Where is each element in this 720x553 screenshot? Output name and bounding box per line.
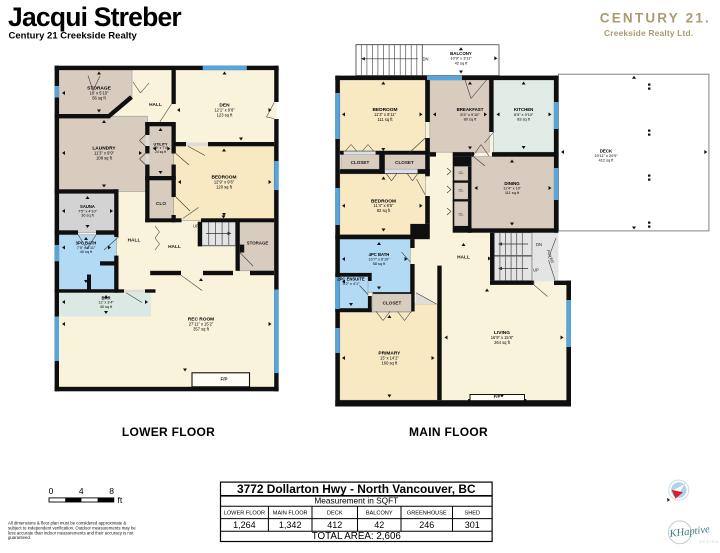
svg-text:264 sq ft: 264 sq ft [494, 340, 511, 345]
svg-text:CENTURY 21.: CENTURY 21. [600, 11, 711, 26]
svg-text:HALL: HALL [149, 102, 162, 108]
svg-text:MAIN FLOOR: MAIN FLOOR [273, 511, 308, 517]
svg-text:F/P: F/P [494, 394, 501, 399]
svg-text:CL: CL [458, 170, 464, 175]
svg-text:120 sq ft: 120 sq ft [216, 184, 233, 189]
svg-text:108 sq ft: 108 sq ft [96, 155, 113, 160]
svg-text:83 sq ft: 83 sq ft [517, 117, 531, 122]
svg-text:357 sq ft: 357 sq ft [193, 326, 210, 331]
svg-text:TOTAL AREA: 2,606: TOTAL AREA: 2,606 [312, 531, 402, 542]
svg-text:CL: CL [458, 211, 464, 216]
svg-text:40 sq ft: 40 sq ft [80, 250, 93, 254]
svg-text:412 sq ft: 412 sq ft [599, 158, 615, 163]
svg-text:111 sq ft: 111 sq ft [377, 117, 393, 122]
svg-text:F/P: F/P [220, 377, 227, 382]
svg-text:80 sq ft: 80 sq ft [464, 117, 478, 122]
svg-text:ft: ft [118, 495, 123, 505]
svg-text:36 sq ft: 36 sq ft [81, 214, 94, 218]
svg-text:LOWER FLOOR: LOWER FLOOR [224, 511, 265, 517]
svg-text:58 sq ft: 58 sq ft [373, 262, 386, 266]
svg-text:Measurement in SQFT: Measurement in SQFT [314, 496, 398, 506]
svg-text:246: 246 [419, 520, 434, 530]
svg-text:56 sq ft: 56 sq ft [92, 95, 106, 100]
svg-text:CL: CL [458, 187, 464, 192]
svg-text:DN: DN [536, 242, 542, 247]
svg-text:Creekside Realty Ltd.: Creekside Realty Ltd. [604, 28, 693, 38]
svg-text:guaranteed.: guaranteed. [8, 535, 31, 540]
svg-text:1,264: 1,264 [233, 520, 256, 530]
svg-text:1,342: 1,342 [279, 520, 302, 530]
svg-text:82 sq ft: 82 sq ft [377, 208, 391, 213]
svg-text:7’5” x 4’10”: 7’5” x 4’10” [78, 209, 98, 213]
svg-text:42: 42 [374, 520, 384, 530]
svg-text:SHED: SHED [465, 511, 481, 517]
svg-text:160 sq ft: 160 sq ft [382, 360, 399, 365]
svg-text:CLOSET: CLOSET [383, 301, 402, 306]
svg-text:5’2” x 4’1”: 5’2” x 4’1” [343, 282, 360, 286]
svg-text:8: 8 [109, 486, 114, 496]
svg-text:3772 Dollarton Hwy - North Van: 3772 Dollarton Hwy - North Vancouver, BC [237, 482, 476, 496]
svg-text:UP: UP [193, 224, 199, 229]
svg-text:HALL: HALL [168, 244, 181, 250]
svg-text:24 sq ft: 24 sq ft [155, 150, 166, 154]
svg-text:LOWER FLOOR: LOWER FLOOR [122, 425, 215, 439]
svg-text:CLOSET: CLOSET [351, 160, 370, 165]
svg-text:DN: DN [423, 57, 429, 62]
svg-text:Century 21 Creekside Realty: Century 21 Creekside Realty [9, 31, 138, 42]
svg-text:STORAGE: STORAGE [247, 241, 269, 246]
svg-text:123 sq ft: 123 sq ft [217, 112, 234, 117]
svg-text:DESIGN: DESIGN [699, 540, 719, 544]
svg-text:301: 301 [465, 520, 480, 530]
svg-text:12’ x 3’4”: 12’ x 3’4” [98, 301, 114, 305]
svg-text:4: 4 [79, 486, 84, 496]
svg-text:HALL: HALL [457, 255, 470, 261]
svg-text:CLOSET: CLOSET [395, 160, 414, 165]
svg-text:7’5” x 6’11”: 7’5” x 6’11” [77, 246, 96, 250]
svg-text:111 sq ft: 111 sq ft [505, 190, 520, 195]
svg-text:40 sq ft: 40 sq ft [100, 305, 113, 309]
svg-text:Jacqui Streber: Jacqui Streber [8, 2, 181, 32]
svg-text:10’7” x 6’10”: 10’7” x 6’10” [369, 257, 391, 261]
svg-text:CLO: CLO [156, 201, 166, 207]
svg-text:DECK: DECK [327, 511, 343, 517]
svg-text:HALL: HALL [128, 238, 141, 244]
svg-text:MAIN FLOOR: MAIN FLOOR [409, 425, 488, 439]
svg-text:UP: UP [533, 268, 539, 273]
svg-text:42 sq ft: 42 sq ft [455, 60, 469, 65]
svg-text:BALCONY: BALCONY [366, 511, 393, 517]
svg-text:0: 0 [49, 486, 54, 496]
svg-text:412: 412 [327, 520, 342, 530]
svg-text:4PC BATH: 4PC BATH [369, 252, 390, 257]
svg-text:2PC ENSUITE: 2PC ENSUITE [337, 277, 365, 282]
svg-text:GREENHOUSE: GREENHOUSE [407, 511, 447, 517]
